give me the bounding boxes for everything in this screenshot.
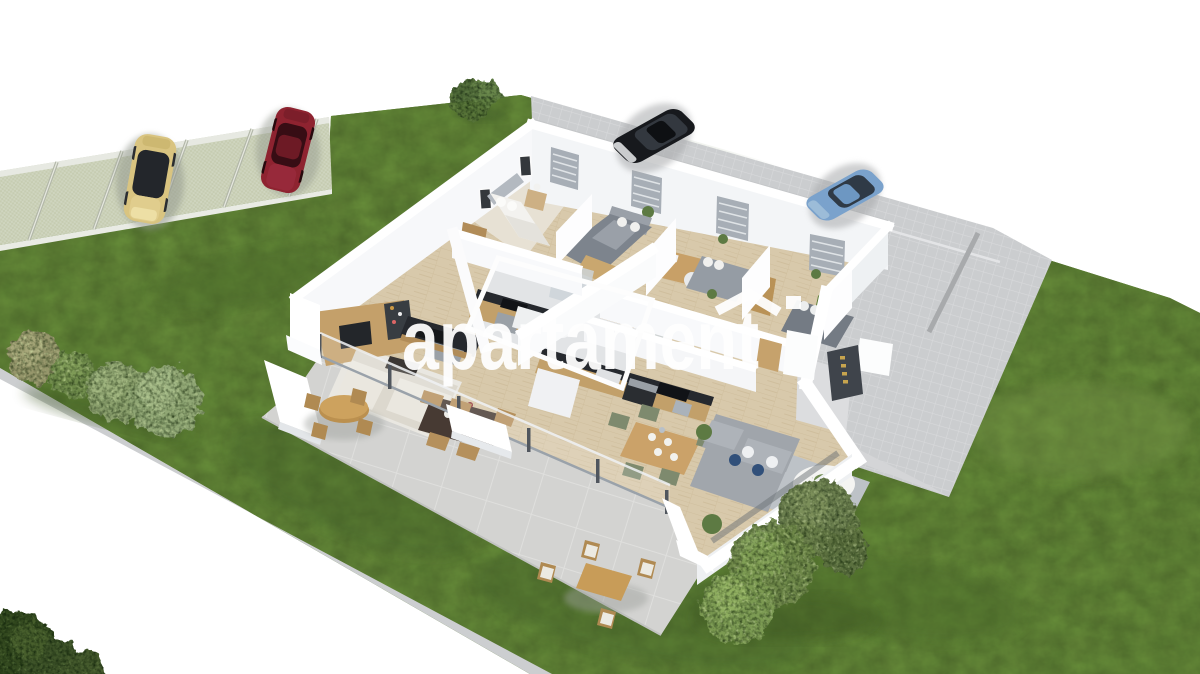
svg-text:apartament: apartament	[402, 293, 759, 387]
